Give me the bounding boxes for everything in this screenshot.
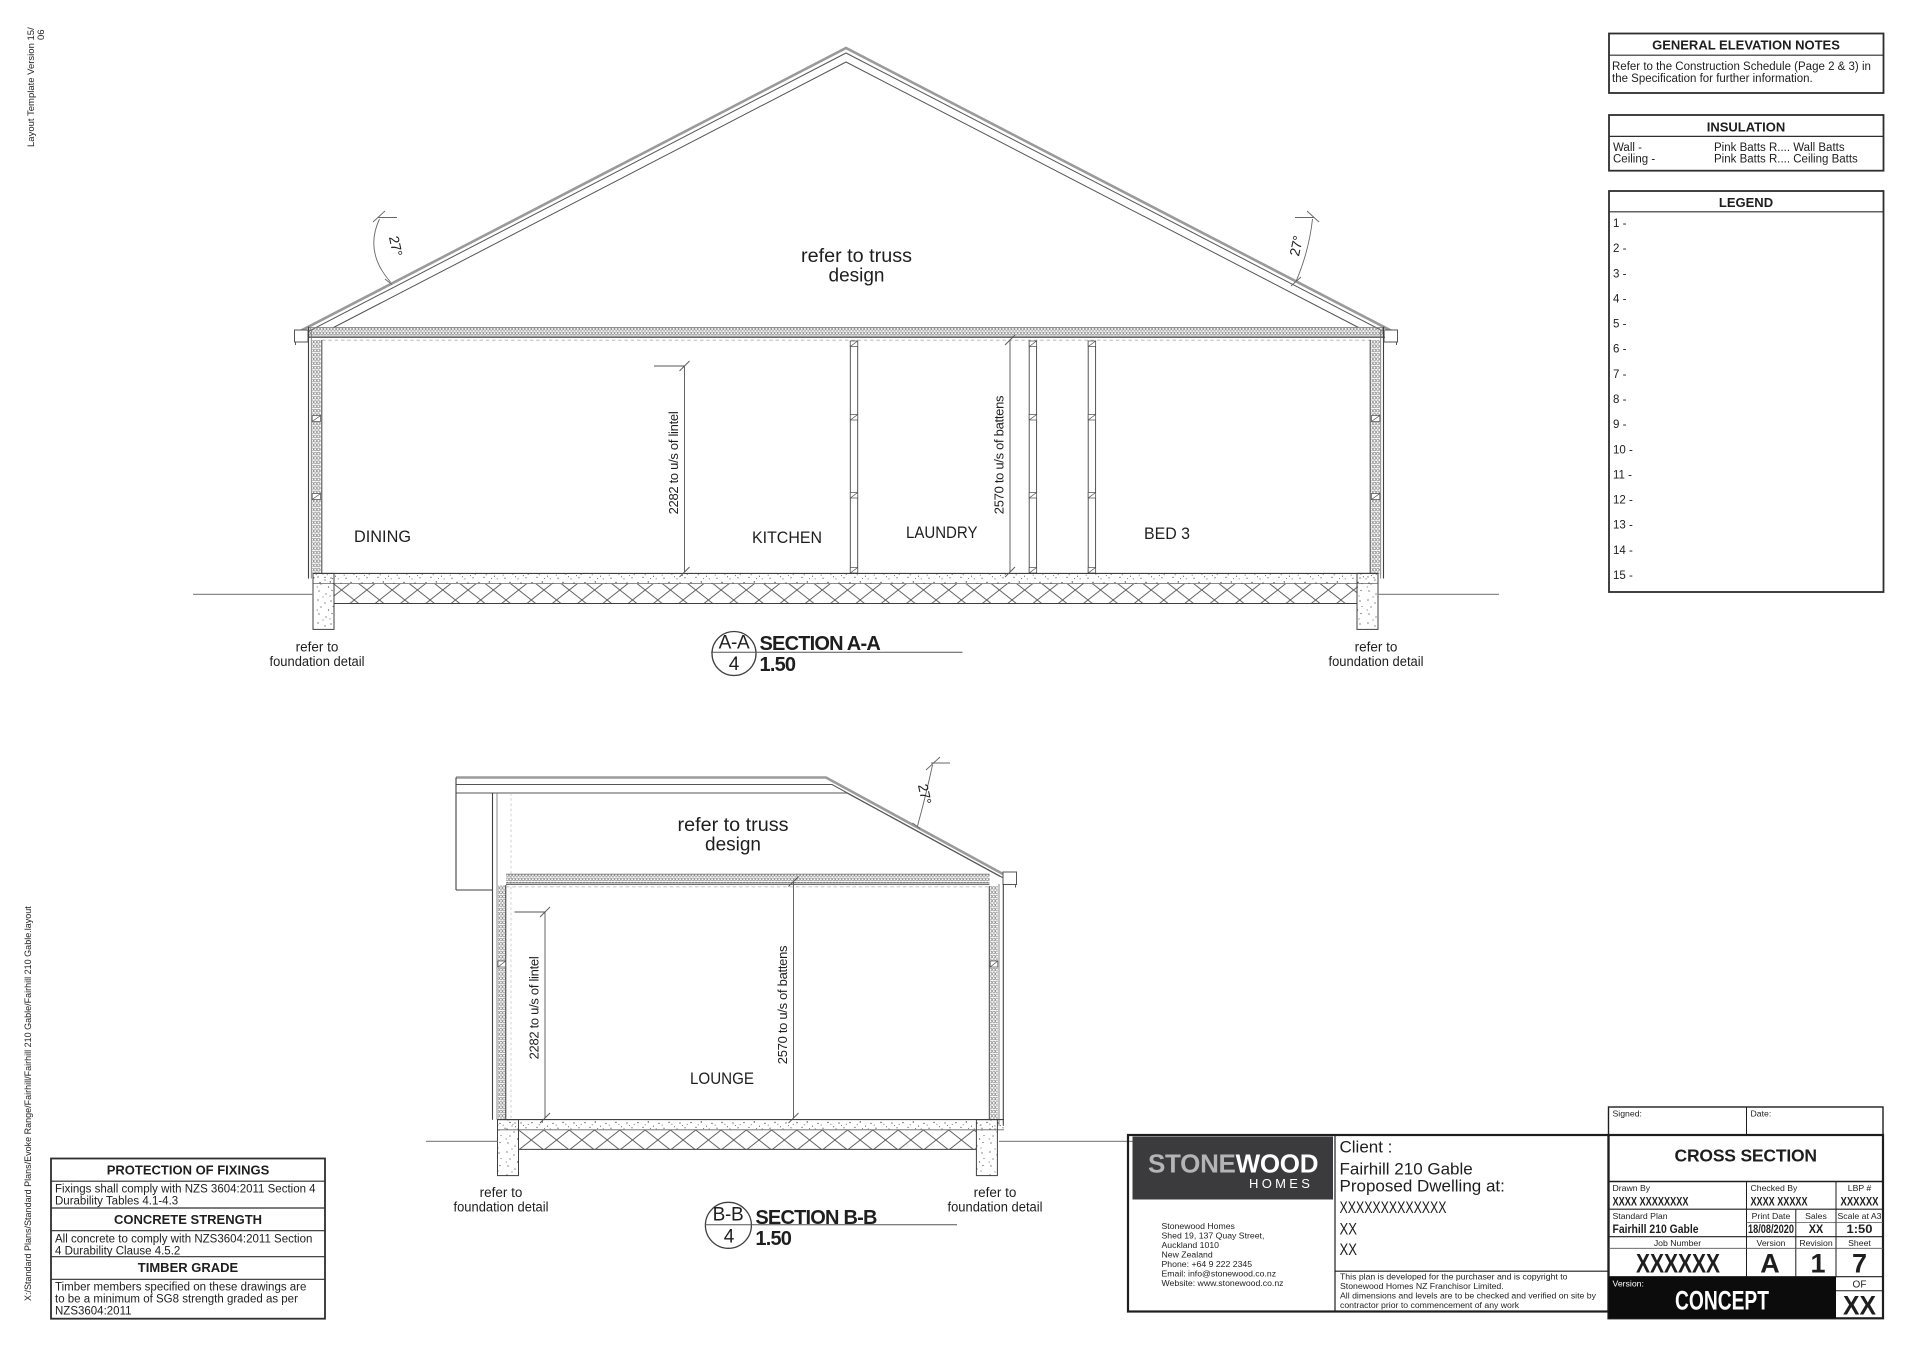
svg-text:3 -: 3 - xyxy=(1613,268,1627,280)
svg-text:Job Number: Job Number xyxy=(1654,1238,1701,1248)
svg-text:XX: XX xyxy=(1340,1240,1358,1259)
svg-text:to be a minimum of SG8 strengt: to be a minimum of SG8 strength graded a… xyxy=(55,1294,298,1306)
svg-text:1.50: 1.50 xyxy=(755,1228,791,1250)
svg-text:New Zealand: New Zealand xyxy=(1162,1250,1213,1260)
svg-text:KITCHEN: KITCHEN xyxy=(752,528,822,547)
svg-text:2282 to u/s of lintel: 2282 to u/s of lintel xyxy=(666,411,681,514)
svg-text:design: design xyxy=(705,835,761,856)
svg-text:XXXXXX: XXXXXX xyxy=(1841,1197,1879,1209)
svg-text:14 -: 14 - xyxy=(1613,545,1633,557)
svg-text:XX: XX xyxy=(1340,1220,1358,1239)
svg-text:Stonewood Homes NZ Franchisor: Stonewood Homes NZ Franchisor Limited. xyxy=(1340,1281,1504,1291)
svg-text:LOUNGE: LOUNGE xyxy=(690,1069,754,1088)
svg-text:18/08/2020: 18/08/2020 xyxy=(1748,1224,1794,1236)
svg-text:Signed:: Signed: xyxy=(1613,1109,1642,1119)
svg-text:design: design xyxy=(829,266,885,287)
svg-text:LBP #: LBP # xyxy=(1848,1183,1872,1193)
svg-text:Version: Version xyxy=(1757,1238,1786,1248)
svg-text:XXXX XXXXX: XXXX XXXXX xyxy=(1751,1197,1808,1209)
svg-text:Scale at A3: Scale at A3 xyxy=(1838,1211,1882,1221)
svg-text:Layout Template Version 15/: Layout Template Version 15/ xyxy=(26,27,37,147)
svg-text:refer to: refer to xyxy=(480,1185,523,1200)
svg-text:7: 7 xyxy=(1852,1249,1867,1279)
svg-text:Print Date: Print Date xyxy=(1752,1211,1791,1221)
svg-text:refer to: refer to xyxy=(1355,640,1398,655)
svg-text:Proposed Dwelling at:: Proposed Dwelling at: xyxy=(1340,1177,1505,1196)
svg-text:SECTION B-B: SECTION B-B xyxy=(755,1207,877,1229)
svg-text:DINING: DINING xyxy=(354,527,411,546)
svg-text:NZS3604:2011: NZS3604:2011 xyxy=(55,1306,132,1318)
svg-text:Drawn By: Drawn By xyxy=(1613,1183,1651,1193)
svg-text:4: 4 xyxy=(729,654,740,675)
svg-text:CROSS SECTION: CROSS SECTION xyxy=(1675,1146,1817,1166)
svg-text:13 -: 13 - xyxy=(1613,520,1633,532)
svg-text:TIMBER GRADE: TIMBER GRADE xyxy=(138,1260,239,1275)
svg-text:This plan is developed for the: This plan is developed for the purchaser… xyxy=(1340,1272,1568,1282)
svg-text:4 -: 4 - xyxy=(1613,293,1627,305)
svg-text:GENERAL ELEVATION NOTES: GENERAL ELEVATION NOTES xyxy=(1652,38,1840,53)
svg-text:BED 3: BED 3 xyxy=(1144,524,1190,543)
svg-text:refer to truss: refer to truss xyxy=(678,815,789,836)
svg-text:2 -: 2 - xyxy=(1613,243,1627,255)
svg-text:Client :: Client : xyxy=(1340,1138,1393,1157)
svg-text:LEGEND: LEGEND xyxy=(1719,195,1773,210)
svg-text:27°: 27° xyxy=(915,782,935,805)
svg-text:9 -: 9 - xyxy=(1613,419,1627,431)
svg-text:1 -: 1 - xyxy=(1613,218,1627,230)
svg-text:27°: 27° xyxy=(386,234,406,257)
svg-text:X:/Standard Plans/Standard Pla: X:/Standard Plans/Standard Plans/Evoke R… xyxy=(23,906,33,1301)
svg-text:XXXX XXXXXXXX: XXXX XXXXXXXX xyxy=(1613,1197,1689,1209)
svg-text:06: 06 xyxy=(36,29,47,40)
svg-text:4 Durability Clause 4.5.2: 4 Durability Clause 4.5.2 xyxy=(55,1246,180,1258)
svg-text:A-A: A-A xyxy=(719,633,750,654)
svg-text:XXXXXXXXXXXXX: XXXXXXXXXXXXX xyxy=(1340,1198,1447,1217)
svg-text:Fairhill 210 Gable: Fairhill 210 Gable xyxy=(1613,1224,1699,1236)
svg-text:1: 1 xyxy=(1810,1249,1825,1279)
svg-text:Pink Batts R.... Ceiling Batts: Pink Batts R.... Ceiling Batts xyxy=(1714,153,1858,165)
svg-text:Fixings shall comply with NZS: Fixings shall comply with NZS 3604:2011 … xyxy=(55,1184,316,1196)
svg-text:Revision: Revision xyxy=(1799,1238,1832,1248)
svg-text:Durability Tables 4.1-4.3: Durability Tables 4.1-4.3 xyxy=(55,1196,178,1208)
svg-text:Pink Batts R.... Wall Batts: Pink Batts R.... Wall Batts xyxy=(1714,142,1845,154)
svg-text:STONEWOOD: STONEWOOD xyxy=(1148,1149,1318,1179)
svg-text:refer to: refer to xyxy=(974,1185,1017,1200)
svg-text:CONCEPT: CONCEPT xyxy=(1675,1286,1769,1316)
svg-text:11 -: 11 - xyxy=(1613,469,1632,481)
svg-text:2570 to u/s of battens: 2570 to u/s of battens xyxy=(992,395,1007,514)
svg-text:HOMES: HOMES xyxy=(1249,1176,1313,1191)
svg-text:10 -: 10 - xyxy=(1613,444,1633,456)
svg-text:Shed 19, 137 Quay Street,: Shed 19, 137 Quay Street, xyxy=(1162,1231,1265,1241)
svg-text:Wall -: Wall - xyxy=(1613,142,1642,154)
svg-text:Phone: +64 9 222 2345: Phone: +64 9 222 2345 xyxy=(1162,1259,1253,1269)
svg-text:XXXXXX: XXXXXX xyxy=(1636,1249,1720,1279)
svg-text:Auckland 1010: Auckland 1010 xyxy=(1162,1240,1220,1250)
svg-text:CONCRETE STRENGTH: CONCRETE STRENGTH xyxy=(114,1212,262,1227)
svg-text:1:50: 1:50 xyxy=(1847,1224,1873,1236)
svg-text:Checked By: Checked By xyxy=(1751,1183,1798,1193)
svg-text:OF: OF xyxy=(1853,1280,1867,1291)
svg-text:All concrete to comply with NZ: All concrete to comply with NZS3604:2011… xyxy=(55,1234,312,1246)
svg-text:Ceiling -: Ceiling - xyxy=(1613,153,1655,165)
svg-text:foundation detail: foundation detail xyxy=(1329,654,1424,669)
svg-text:12 -: 12 - xyxy=(1613,495,1633,507)
svg-text:foundation detail: foundation detail xyxy=(948,1200,1043,1215)
svg-text:Email: info@stonewood.co.nz: Email: info@stonewood.co.nz xyxy=(1162,1269,1277,1279)
svg-text:SECTION A-A: SECTION A-A xyxy=(760,633,881,655)
svg-text:foundation detail: foundation detail xyxy=(454,1200,549,1215)
svg-text:XX: XX xyxy=(1843,1291,1876,1321)
svg-text:27°: 27° xyxy=(1286,234,1306,257)
svg-text:Sales: Sales xyxy=(1805,1211,1827,1221)
svg-text:refer to: refer to xyxy=(296,640,339,655)
svg-text:Sheet: Sheet xyxy=(1848,1238,1871,1248)
svg-text:Standard Plan: Standard Plan xyxy=(1613,1211,1668,1221)
svg-text:contractor prior to commenceme: contractor prior to commencement of any … xyxy=(1340,1300,1520,1310)
svg-text:refer to truss: refer to truss xyxy=(801,246,912,267)
svg-text:Stonewood Homes: Stonewood Homes xyxy=(1162,1221,1236,1231)
svg-text:6 -: 6 - xyxy=(1613,344,1627,356)
svg-text:2282 to u/s of lintel: 2282 to u/s of lintel xyxy=(527,956,542,1059)
svg-text:Date:: Date: xyxy=(1751,1109,1772,1119)
svg-text:5 -: 5 - xyxy=(1613,319,1627,331)
svg-text:PROTECTION OF FIXINGS: PROTECTION OF FIXINGS xyxy=(107,1163,270,1178)
svg-text:1.50: 1.50 xyxy=(760,654,796,676)
svg-text:2570 to u/s of battens: 2570 to u/s of battens xyxy=(775,945,790,1064)
svg-text:All dimensions and levels are: All dimensions and levels are to be chec… xyxy=(1340,1291,1597,1301)
svg-text:A: A xyxy=(1760,1249,1780,1279)
svg-text:the Specification for further: the Specification for further informatio… xyxy=(1612,73,1813,85)
svg-text:7 -: 7 - xyxy=(1613,369,1627,381)
svg-text:XX: XX xyxy=(1809,1224,1824,1236)
svg-text:Website: www.stonewood.co.nz: Website: www.stonewood.co.nz xyxy=(1162,1278,1284,1288)
svg-text:Timber members specified on th: Timber members specified on these drawin… xyxy=(55,1282,306,1294)
svg-text:B-B: B-B xyxy=(713,1205,744,1226)
svg-text:LAUNDRY: LAUNDRY xyxy=(906,523,978,542)
svg-text:8 -: 8 - xyxy=(1613,394,1627,406)
svg-text:foundation detail: foundation detail xyxy=(270,654,365,669)
svg-text:Refer to the Construction Sche: Refer to the Construction Schedule (Page… xyxy=(1612,61,1871,73)
svg-text:INSULATION: INSULATION xyxy=(1707,120,1785,135)
svg-text:15 -: 15 - xyxy=(1613,570,1633,582)
svg-text:Version:: Version: xyxy=(1613,1279,1644,1289)
svg-text:4: 4 xyxy=(724,1227,735,1248)
